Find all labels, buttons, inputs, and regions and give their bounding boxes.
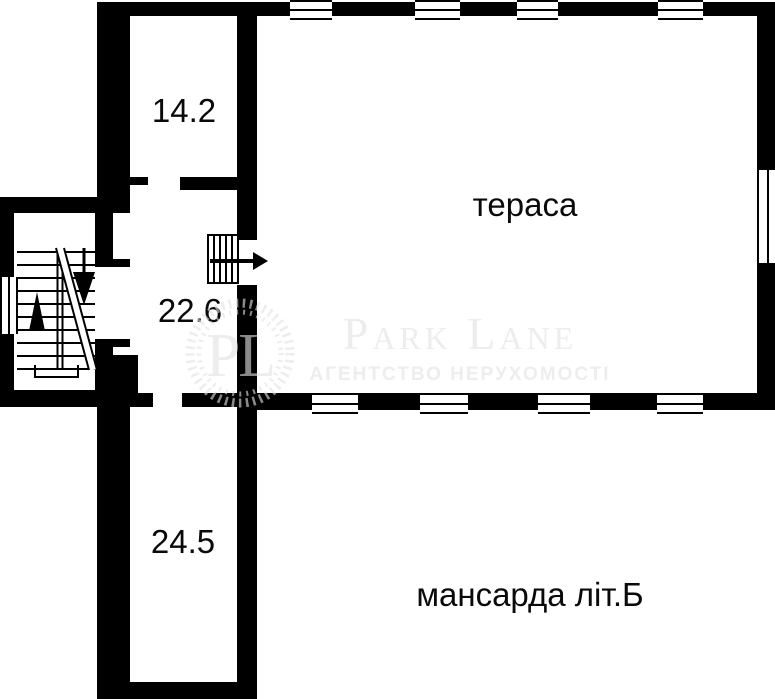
entry-arrow-icon — [253, 252, 268, 270]
room-label-22-6: 22.6 — [140, 292, 240, 330]
mini-stairs-icon — [207, 233, 271, 285]
wall-door-jamb-a — [113, 259, 130, 267]
window-symbol-bottom-4 — [657, 393, 703, 414]
window-symbol-top-3 — [517, 0, 558, 20]
wall-room14-bottom-segment — [180, 177, 237, 190]
window-symbol-bottom-2 — [420, 393, 468, 414]
window-symbol-top-2 — [415, 0, 460, 20]
wall-door-jamb-b — [113, 339, 130, 347]
wall-divider-upper — [237, 2, 257, 240]
room-label-14-2: 14.2 — [131, 92, 237, 130]
room-label-24-5: 24.5 — [133, 523, 233, 561]
wall-divider-lower — [237, 285, 257, 410]
wall-stairwell-right-upper — [95, 197, 113, 267]
window-symbol-bottom-3 — [538, 393, 590, 414]
room-label-terrace: тераса — [430, 186, 620, 224]
floor-plan: 14.2 тераса 22.6 24.5 мансарда літ.Б PL … — [0, 0, 775, 699]
wall-hall-divider-left — [130, 393, 153, 407]
wall-corridor-bottom — [97, 682, 257, 699]
window-symbol-bottom-1 — [312, 393, 358, 414]
window-symbol-right — [757, 170, 775, 263]
wall-left-composite — [97, 2, 130, 213]
wall-corridor-left — [97, 390, 130, 699]
up-arrow-icon — [29, 292, 45, 331]
wall-hall-divider-right — [182, 393, 238, 407]
staircase-icon — [14, 210, 96, 395]
watermark-brand: Park Lane — [295, 308, 625, 360]
stair-break-line — [64, 248, 96, 370]
window-symbol-top-1 — [290, 0, 332, 20]
wall-corridor-right — [237, 410, 257, 699]
stair-break-line-fill — [60, 248, 93, 370]
plan-caption: мансарда літ.Б — [380, 576, 680, 614]
wall-room14-bottom-stub — [130, 177, 148, 185]
watermark-tagline: АГЕНТСТВО НЕРУХОМОСТІ — [300, 362, 620, 388]
window-symbol-top-4 — [658, 0, 703, 20]
